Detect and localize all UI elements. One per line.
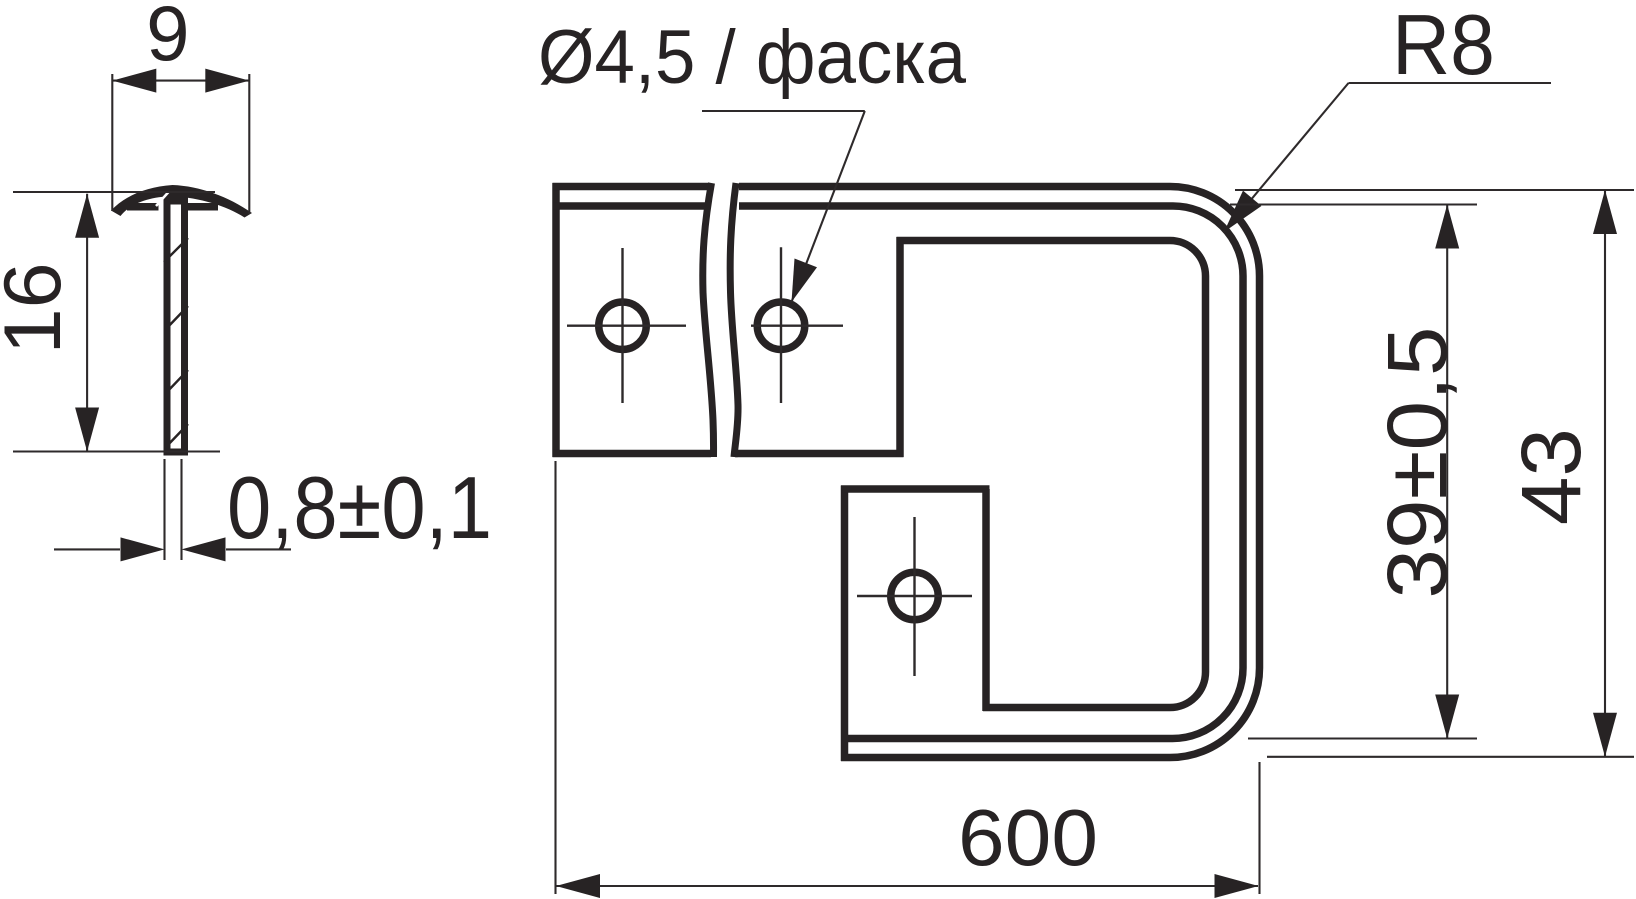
svg-text:0,8±0,1: 0,8±0,1 [227, 458, 492, 557]
svg-text:R8: R8 [1392, 0, 1495, 93]
svg-text:Ø4,5 / фаска: Ø4,5 / фаска [538, 15, 967, 100]
svg-text:39±0,5: 39±0,5 [1370, 327, 1464, 599]
svg-text:9: 9 [146, 0, 189, 77]
svg-text:600: 600 [958, 793, 1098, 882]
svg-text:43: 43 [1504, 428, 1598, 525]
svg-text:16: 16 [0, 262, 78, 354]
